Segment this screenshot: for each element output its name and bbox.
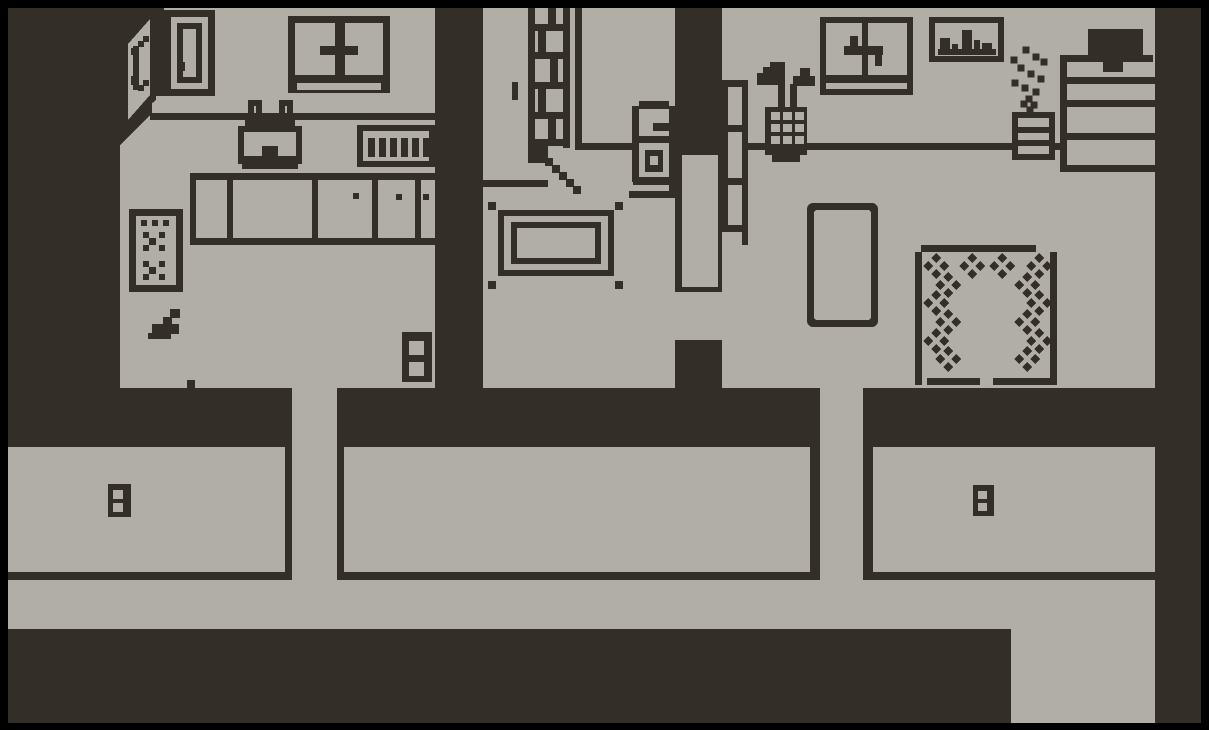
door-handle xyxy=(131,48,139,55)
scene-canvas[interactable] xyxy=(0,0,1209,730)
basement-left-room xyxy=(8,447,285,572)
lower-wall-band xyxy=(8,388,1155,447)
kitchen-window[interactable] xyxy=(288,16,390,93)
wall-outlet[interactable] xyxy=(402,332,432,382)
doorway-floor-gap xyxy=(675,292,722,340)
table-leg xyxy=(615,202,623,210)
window-handle xyxy=(868,46,883,55)
table-leg xyxy=(488,202,496,210)
corridor-left[interactable] xyxy=(292,388,337,582)
table[interactable] xyxy=(488,202,623,289)
window-handle xyxy=(345,46,358,55)
wall-switch[interactable] xyxy=(512,82,518,100)
window-handle xyxy=(875,55,882,66)
basement-middle-room xyxy=(344,447,810,572)
window-sill xyxy=(826,83,907,89)
door-handle xyxy=(131,76,139,85)
cabinet-knob xyxy=(396,194,402,200)
living-room-window[interactable] xyxy=(820,17,913,95)
corridor-right[interactable] xyxy=(820,388,863,582)
hall-wall-line xyxy=(582,143,632,150)
furnace[interactable] xyxy=(629,101,675,198)
window-handle xyxy=(844,46,862,55)
wall-cupboard[interactable] xyxy=(164,10,215,96)
basement-right-door[interactable] xyxy=(973,485,994,516)
skyline-picture xyxy=(929,17,1004,62)
stove[interactable] xyxy=(129,209,183,292)
table-leg xyxy=(488,281,496,289)
dish-rack[interactable] xyxy=(357,125,435,167)
game-viewport[interactable] xyxy=(0,0,1209,730)
bottom-right-path xyxy=(1011,629,1155,723)
basement-right-room xyxy=(873,447,1155,572)
hall-ledge-line xyxy=(483,180,548,187)
cabinet-knob xyxy=(423,194,429,200)
partition-wall xyxy=(675,8,722,155)
bottom-walkway xyxy=(8,580,1155,629)
kettle-mouth xyxy=(262,146,278,164)
doorway[interactable] xyxy=(675,148,722,292)
window-handle xyxy=(850,36,858,47)
cupboard-handle xyxy=(177,62,185,71)
basement-left-door[interactable] xyxy=(108,484,131,517)
cabinet-knob xyxy=(353,193,359,199)
hall-wall-vertical xyxy=(575,8,582,150)
window-handle xyxy=(320,46,335,55)
floor-mat xyxy=(807,203,878,327)
window-sill xyxy=(297,83,381,90)
table-leg xyxy=(615,281,623,289)
floor-edge-stub xyxy=(187,380,195,388)
floor-hatch[interactable] xyxy=(675,340,722,389)
